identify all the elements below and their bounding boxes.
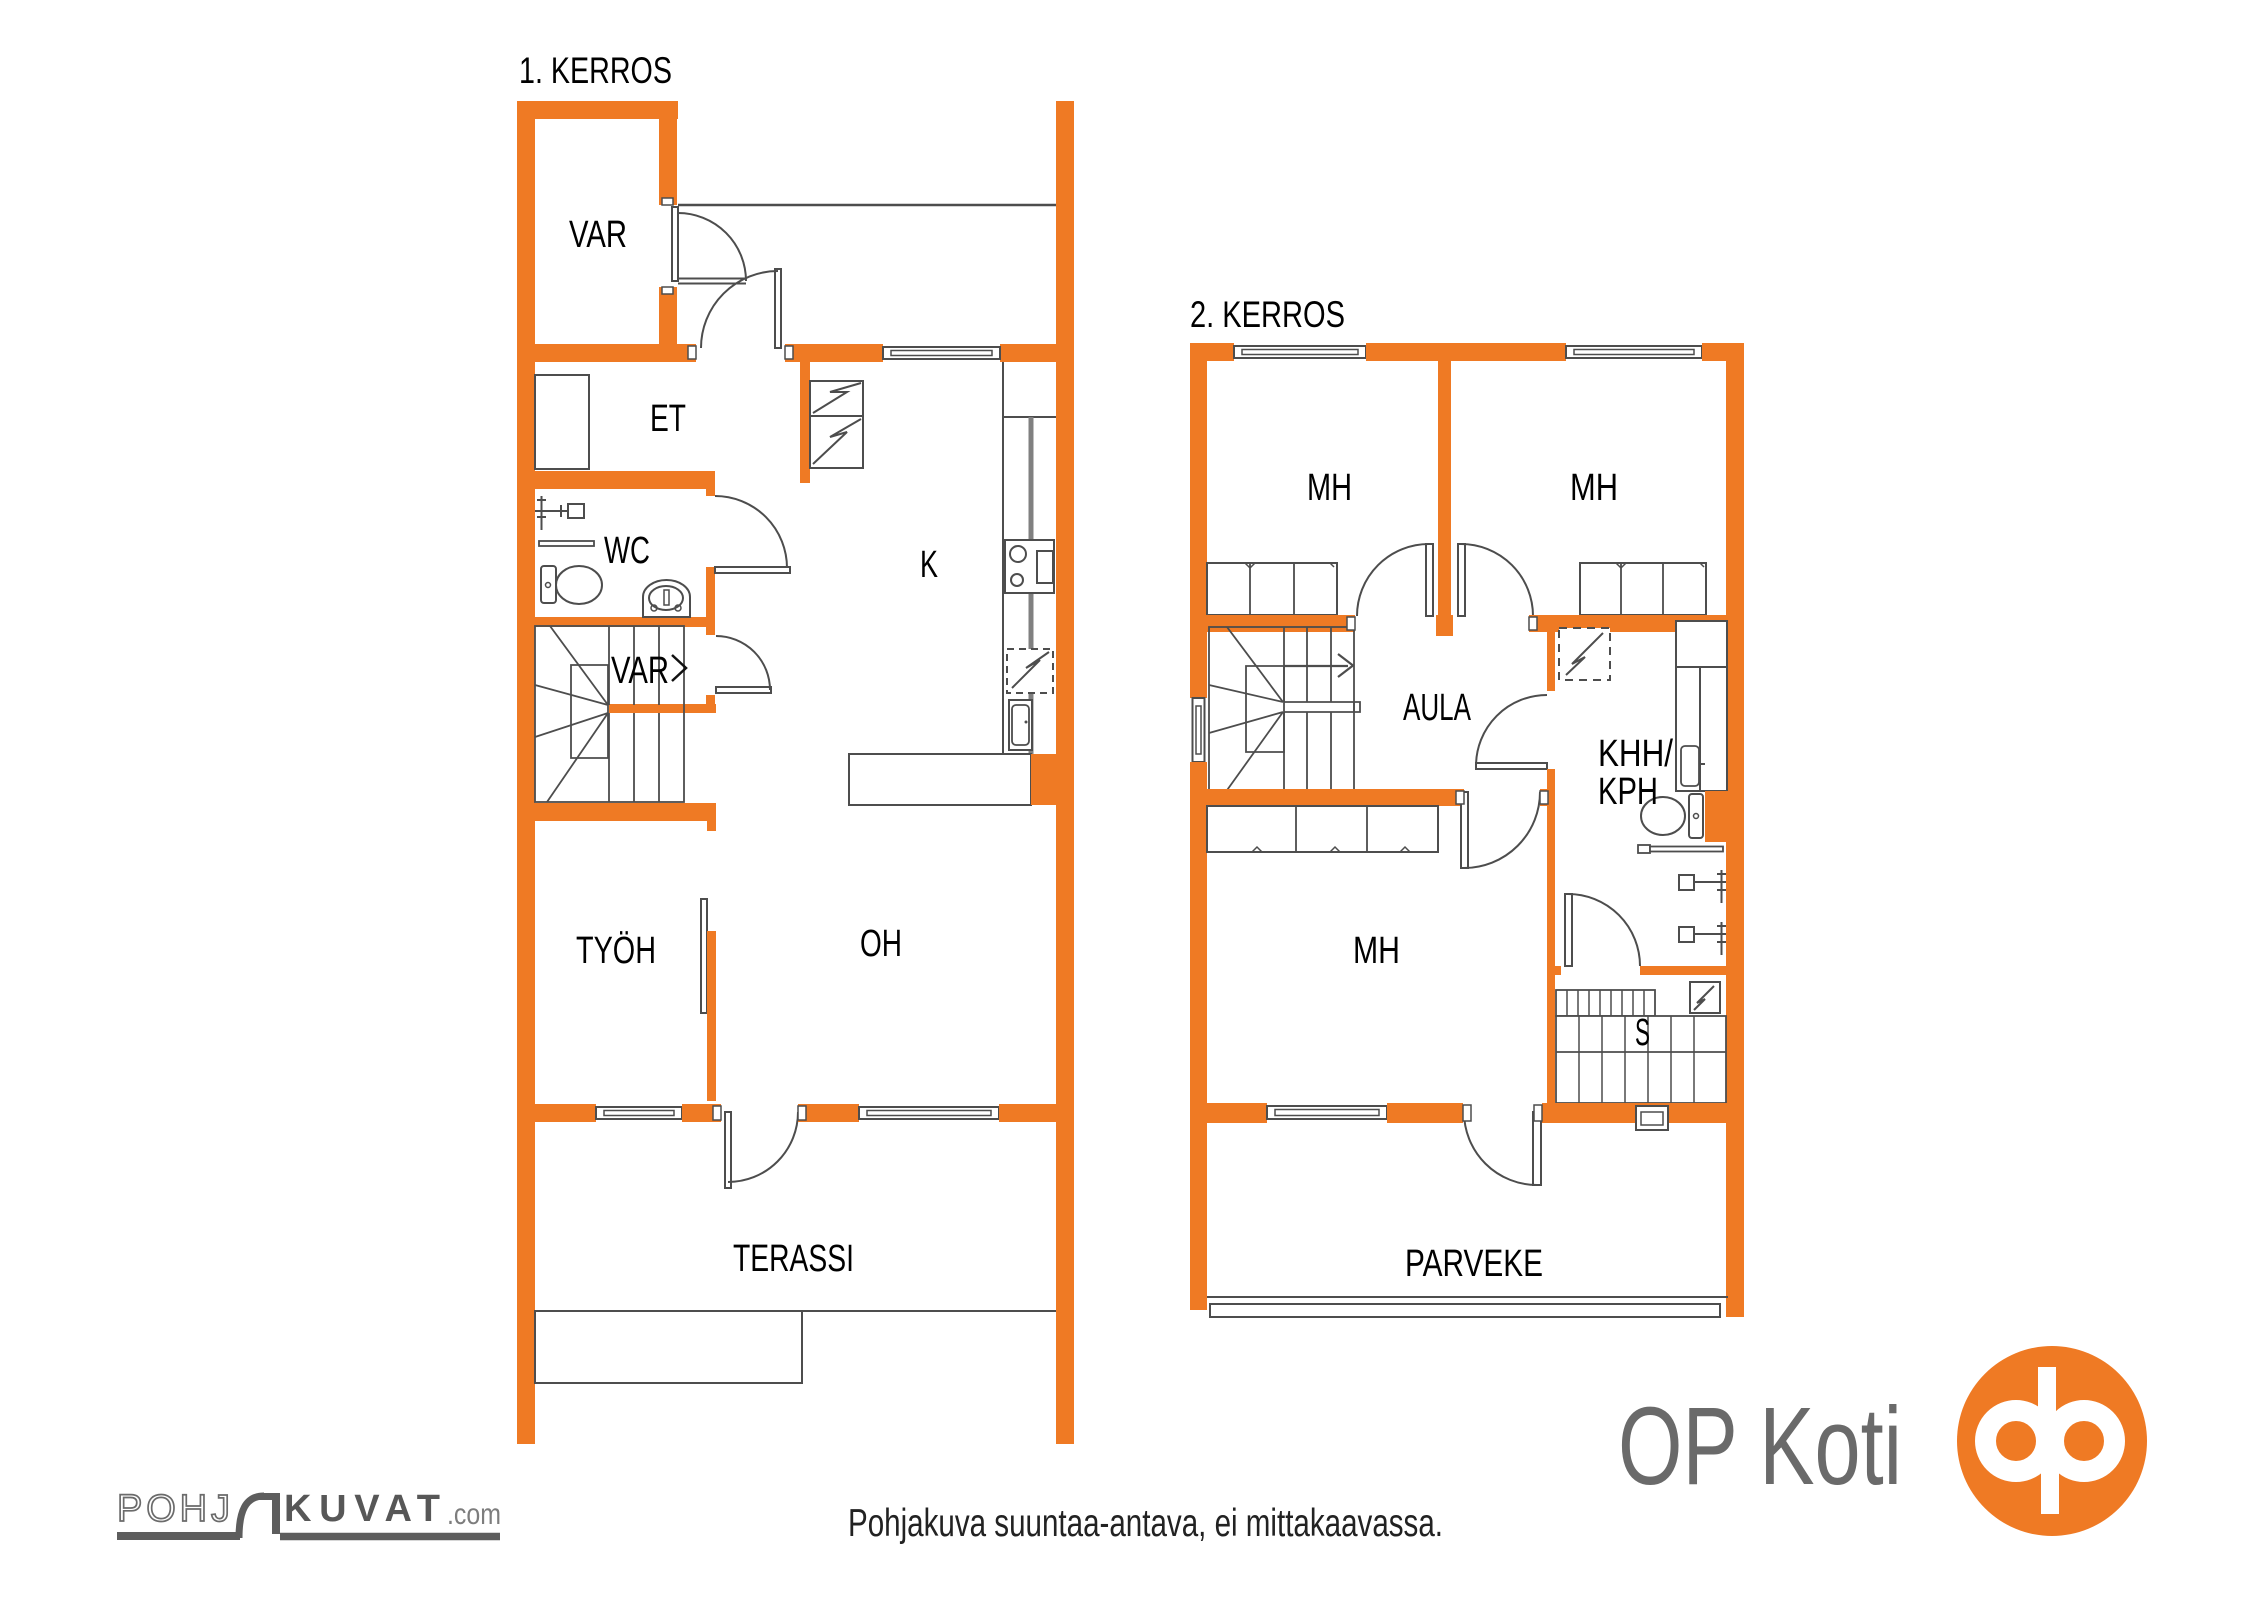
svg-text:MH: MH (1570, 467, 1618, 509)
svg-text:ET: ET (650, 398, 686, 440)
svg-text:TYÖH: TYÖH (576, 930, 656, 972)
svg-text:OP Koti: OP Koti (1618, 1385, 1902, 1508)
svg-text:KUVAT: KUVAT (284, 1488, 440, 1530)
svg-text:KPH: KPH (1598, 771, 1658, 813)
svg-text:WC: WC (604, 530, 650, 572)
svg-text:POHJ: POHJ (117, 1488, 230, 1530)
svg-text:MH: MH (1353, 930, 1400, 972)
svg-text:2. KERROS: 2. KERROS (1190, 294, 1345, 335)
svg-text:1. KERROS: 1. KERROS (519, 50, 672, 91)
svg-text:KHH/: KHH/ (1598, 733, 1673, 775)
svg-text:PARVEKE: PARVEKE (1405, 1243, 1543, 1285)
svg-text:OH: OH (860, 923, 902, 965)
svg-text:TERASSI: TERASSI (733, 1238, 854, 1280)
svg-text:K: K (920, 544, 938, 586)
svg-text:S: S (1635, 1012, 1650, 1054)
svg-text:VAR: VAR (611, 650, 669, 692)
svg-text:.com: .com (447, 1498, 501, 1531)
svg-text:AULA: AULA (1403, 687, 1471, 729)
svg-text:MH: MH (1307, 467, 1352, 509)
svg-text:Pohjakuva suuntaa-antava, ei m: Pohjakuva suuntaa-antava, ei mittakaavas… (848, 1502, 1443, 1545)
svg-text:VAR: VAR (569, 214, 627, 256)
